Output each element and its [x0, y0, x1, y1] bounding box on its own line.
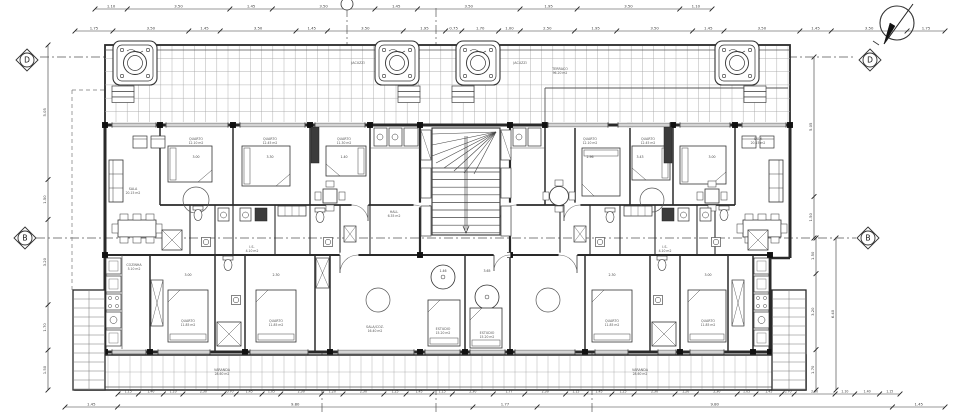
room-area-label: 12.45 m2: [263, 141, 278, 145]
kitchen-appliance: [106, 330, 121, 346]
chair-icon: [112, 224, 118, 233]
dimension-label: 1.45: [200, 25, 209, 30]
sink-icon: [324, 238, 333, 247]
chair-icon: [133, 237, 141, 243]
column-block: [507, 349, 513, 355]
chair-icon: [543, 192, 549, 200]
jacuzzi-icon: [715, 41, 759, 85]
column-block: [242, 349, 248, 355]
dimension-label: 1.70: [42, 323, 47, 332]
jacuzzi-icon: [375, 41, 419, 85]
dimension-label: 1.45: [307, 25, 316, 30]
kitchen-appliance: [106, 276, 121, 292]
room-area-label: 20.15 m2: [126, 191, 141, 195]
room-area-label: 6.35 m2: [388, 214, 401, 218]
grid-marker-top-circle: [341, 0, 353, 10]
kitchen-appliance: [754, 276, 769, 292]
dimension-label: 5.05: [42, 107, 47, 116]
grid-marker-d-left-letter: D: [24, 56, 30, 65]
wardrobe-block: [664, 127, 672, 163]
door-swing-arc: [564, 205, 580, 221]
dimension-label: 1.10: [692, 3, 701, 8]
kitchen-appliance: [106, 294, 121, 310]
column-block: [677, 349, 683, 355]
utility-box: [513, 128, 526, 146]
square-table-icon: [323, 189, 337, 203]
dimension-label: 1.45: [811, 25, 820, 30]
dimension-label: 6.40: [830, 309, 835, 318]
kitchen-appliance: [754, 330, 769, 346]
chair-icon: [745, 214, 753, 220]
bed-icon: [470, 308, 502, 348]
washer-icon: [678, 208, 689, 221]
chair-icon: [326, 205, 334, 211]
dimension-label: 3.50: [464, 3, 473, 8]
terrace-steps: [744, 97, 766, 103]
rug-icon: [536, 288, 560, 312]
dimension-label: 5.05: [808, 122, 813, 131]
room-area-label: 28.60 m2: [633, 372, 648, 376]
dimension-label: 1.95: [544, 3, 553, 8]
dimension-label: 0.75: [449, 25, 458, 30]
sink-icon: [202, 238, 211, 247]
dimension-label: 1.10: [107, 3, 116, 8]
grid-marker-b-left-letter: B: [22, 234, 27, 243]
column-block: [462, 349, 468, 355]
room-area-label: 11.30 m2: [337, 141, 352, 145]
terrace-steps: [112, 86, 134, 92]
column-block: [327, 349, 333, 355]
north-arrow-needle-tip: [884, 23, 895, 44]
chair-icon: [339, 192, 345, 200]
room-area-label: 20.15 m2: [751, 141, 766, 145]
room-area-label: 28.60 m2: [215, 372, 230, 376]
room-area-label: 96.20 m2: [553, 71, 568, 75]
column-block: [417, 122, 423, 128]
dimension-label: 1.40: [864, 389, 871, 393]
dimension-label: 3.50: [865, 25, 874, 30]
dimension-label: 1.45: [704, 25, 713, 30]
grid-marker-d-right-letter: D: [867, 56, 873, 65]
interior-dim-label: 3.00: [704, 273, 711, 277]
sink-icon: [596, 238, 605, 247]
interior-dim-label: 3.65: [483, 269, 490, 273]
terrace-steps: [398, 92, 420, 98]
column-block: [750, 349, 756, 355]
chair-icon: [156, 224, 162, 233]
toilet-bowl: [658, 260, 666, 271]
dimension-label: 3.20: [810, 307, 815, 316]
dimension-label: 1.50: [42, 195, 47, 204]
terrace-steps: [112, 97, 134, 103]
dimension-label: 9.80: [711, 401, 720, 406]
toilet-bowl: [224, 260, 232, 271]
dimension-label: 9.80: [291, 401, 300, 406]
sofa-icon: [109, 160, 123, 202]
dimension-label: 1.10: [841, 389, 848, 393]
sofa-icon: [769, 160, 783, 202]
washer-icon: [700, 208, 711, 221]
wardrobe-block: [255, 208, 267, 221]
interior-dim-label: 3.00: [708, 155, 715, 159]
chair-icon: [771, 214, 779, 220]
interior-dim-label: 2.30: [608, 273, 615, 277]
grid-marker-b-right-letter: B: [865, 234, 870, 243]
jacuzzi-icon: [456, 41, 500, 85]
dimension-label: 3.50: [319, 3, 328, 8]
terrace-steps: [452, 92, 474, 98]
dimension-label: 1.95: [591, 25, 600, 30]
utility-box: [404, 128, 418, 146]
dimension-label: 1.95: [420, 25, 429, 30]
toilet-bowl: [606, 212, 614, 223]
sink-icon: [232, 296, 241, 305]
dimension-label: 1.45: [247, 3, 256, 8]
toilet-bowl: [194, 210, 202, 221]
armchair-icon: [133, 136, 147, 148]
interior-dim-label: 1.46: [439, 269, 446, 273]
sink-icon: [712, 238, 721, 247]
room-area-label: 11.85 m2: [181, 323, 196, 327]
dimension-label: 3.20: [42, 257, 47, 266]
kitchen-appliance: [754, 258, 769, 274]
column-block: [102, 122, 108, 128]
terrace-steps: [744, 86, 766, 92]
dimension-label: 1.45: [87, 401, 96, 406]
toilet-bowl: [720, 210, 728, 221]
kitchen-appliance: [106, 312, 121, 328]
interior-dim-label: 3.00: [192, 155, 199, 159]
chair-icon: [315, 192, 321, 200]
dimension-label: 1.70: [476, 25, 485, 30]
chair-icon: [771, 237, 779, 243]
dimension-label: 1.00: [505, 25, 514, 30]
round-table-icon: [550, 187, 569, 206]
bed-icon: [168, 146, 212, 182]
column-block: [787, 122, 793, 128]
column-block: [582, 349, 588, 355]
north-arrow-base-tick: [873, 41, 879, 45]
washer-icon: [240, 208, 251, 221]
column-block: [102, 252, 108, 258]
chair-icon: [569, 192, 575, 200]
door-swing-arc: [559, 255, 577, 273]
dimension-label: 1.75: [922, 25, 931, 30]
utility-box: [389, 128, 402, 146]
wardrobe-block: [662, 208, 674, 221]
terrace-steps: [112, 92, 134, 98]
north-arrow-needle: [884, 4, 913, 44]
rug-icon: [366, 288, 390, 312]
entry-round-table: [475, 285, 499, 309]
column-block: [767, 252, 773, 258]
chair-icon: [737, 224, 743, 233]
column-block: [417, 252, 423, 258]
chair-icon: [758, 214, 766, 220]
sink-icon: [654, 296, 663, 305]
room-area-label: 16.40 m2: [368, 329, 383, 333]
dimension-label: 3.50: [624, 3, 633, 8]
room-area-label: 11.85 m2: [269, 323, 284, 327]
room-area-label: 12.45 m2: [641, 141, 656, 145]
chair-icon: [146, 214, 154, 220]
dining-table-icon: [118, 220, 156, 237]
stair-shaft: [501, 206, 511, 236]
interior-dim-label: 3.00: [184, 273, 191, 277]
dimension-label: 2.50: [543, 25, 552, 30]
column-block: [417, 349, 423, 355]
dimension-label: 1.45: [392, 3, 401, 8]
chair-icon: [146, 237, 154, 243]
chair-icon: [120, 214, 128, 220]
kitchen-appliance: [754, 312, 769, 328]
column-block: [507, 122, 513, 128]
door-swing-arc: [352, 205, 368, 221]
room-area-label: 11.85 m2: [701, 323, 716, 327]
wardrobe-block: [311, 127, 319, 163]
balcony-outline: [75, 355, 806, 390]
floor-plan-sheet: 1.103.501.453.501.453.501.953.501.101.75…: [0, 0, 960, 415]
dimension-label: 1.50: [42, 365, 47, 374]
interior-dim-label: 3.43: [636, 155, 643, 159]
square-table-icon: [705, 189, 719, 203]
room-label: JACUZZI: [512, 61, 526, 65]
terrace-steps: [398, 97, 420, 103]
interior-dim-label: 2.30: [272, 273, 279, 277]
terrace-steps: [452, 86, 474, 92]
chair-icon: [133, 214, 141, 220]
dimension-label: 3.50: [758, 25, 767, 30]
dimension-label: 1.70: [810, 365, 815, 374]
dimension-label: 3.50: [174, 3, 183, 8]
jacuzzi-icon: [113, 41, 157, 85]
chair-icon: [120, 237, 128, 243]
room-area-label: 12.10 m2: [583, 141, 598, 145]
interior-dim-label: 1.40: [340, 155, 347, 159]
north-arrow-icon: [880, 6, 914, 40]
chair-icon: [781, 224, 787, 233]
washer-icon: [218, 208, 229, 221]
kitchen-appliance: [106, 258, 121, 274]
stair-shaft: [421, 206, 431, 236]
column-block: [147, 349, 153, 355]
interior-dim-label: 3.30: [266, 155, 273, 159]
utility-box: [374, 128, 387, 146]
column-block: [367, 122, 373, 128]
room-area-label: 4.10 m2: [659, 249, 672, 253]
toilet-bowl: [316, 212, 324, 223]
bed-icon: [680, 146, 726, 184]
room-area-label: 11.85 m2: [605, 323, 620, 327]
dimension-label: 1.50: [810, 251, 815, 260]
floor-plan-drawing: 1.103.501.453.501.453.501.953.501.101.75…: [0, 0, 960, 415]
room-area-label: 12.10 m2: [189, 141, 204, 145]
dimension-label: 3.50: [650, 25, 659, 30]
kitchen-appliance: [754, 294, 769, 310]
dimension-label: 3.50: [361, 25, 370, 30]
room-area-label: 4.10 m2: [246, 249, 259, 253]
armchair-icon: [151, 136, 165, 148]
dimension-label: 3.50: [147, 25, 156, 30]
column-block: [542, 122, 548, 128]
dimension-label: 1.45: [914, 401, 923, 406]
column-block: [230, 122, 236, 128]
chair-icon: [697, 192, 703, 200]
room-area-label: 5.10 m2: [128, 267, 141, 271]
utility-box: [528, 128, 541, 146]
terrace-steps: [744, 92, 766, 98]
bed-icon: [326, 146, 366, 176]
dimension-label: 1.77: [501, 401, 510, 406]
dimension-label: 1.75: [90, 25, 99, 30]
door-swing-arc: [340, 255, 358, 273]
dimension-label: 3.50: [254, 25, 263, 30]
interior-dim-label: 2.96: [586, 155, 593, 159]
chair-icon: [721, 192, 727, 200]
chair-icon: [326, 181, 334, 187]
chair-icon: [555, 206, 563, 212]
dimension-label: 1.15: [886, 389, 893, 393]
stair-shaft: [421, 168, 431, 198]
terrace-steps: [398, 86, 420, 92]
terrace-steps: [452, 97, 474, 103]
room-area-label: 15.20 m2: [480, 335, 495, 339]
column-block: [732, 122, 738, 128]
chair-icon: [555, 180, 563, 186]
room-label: JACUZZI: [350, 61, 364, 65]
stair-shaft: [501, 168, 511, 198]
room-area-label: 15.20 m2: [436, 331, 451, 335]
column-block: [157, 122, 163, 128]
dimension-label: 1.50: [808, 212, 813, 221]
chair-icon: [708, 181, 716, 187]
